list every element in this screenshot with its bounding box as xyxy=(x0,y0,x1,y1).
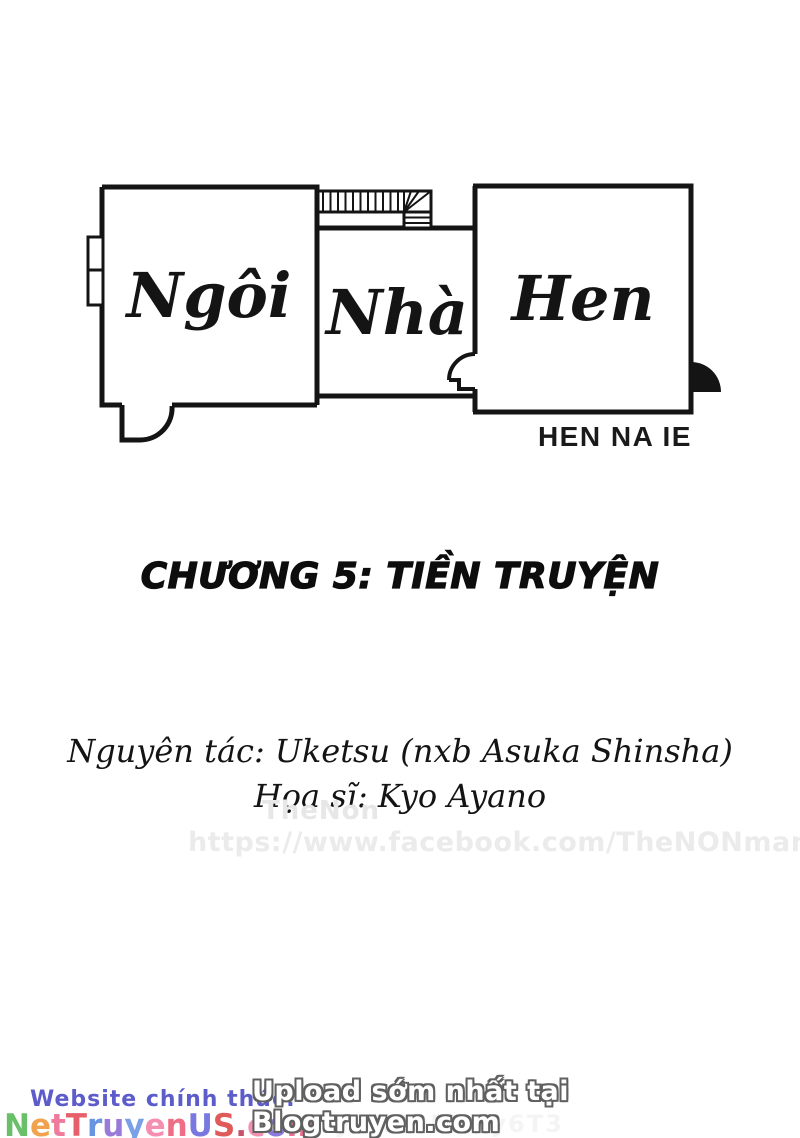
credit-artist: Họa sĩ: Kyo Ayano xyxy=(0,774,800,819)
watermark-group-name: TheNon xyxy=(262,796,380,826)
title-word-2: Nhà xyxy=(324,276,468,349)
credit-original-author: Nguyên tác: Uketsu (nxb Asuka Shinsha) xyxy=(0,729,800,774)
staircase-icon xyxy=(313,191,431,228)
title-romaji: HEN NA IE xyxy=(538,421,692,452)
door-swing-icon xyxy=(122,405,172,440)
credits-block: Nguyên tác: Uketsu (nxb Asuka Shinsha) H… xyxy=(0,729,800,819)
upload-note: Upload sớm nhất tại Blogtruyen.com xyxy=(252,1076,800,1138)
title-word-3: Hen xyxy=(509,262,654,335)
title-word-1: Ngôi xyxy=(125,259,292,332)
title-logo: Ngôi Nhà Hen HEN NA IE xyxy=(0,0,800,480)
watermark-facebook-url: https://www.facebook.com/TheNONmanga xyxy=(188,827,800,858)
chapter-title: CHƯƠNG 5: TIỀN TRUYỆN xyxy=(0,556,800,597)
door-leaf-icon xyxy=(691,362,721,392)
window-icon xyxy=(88,237,103,305)
manga-title-page: Ngôi Nhà Hen HEN NA IE CHƯƠNG 5: TIỀN TR… xyxy=(0,0,800,1138)
